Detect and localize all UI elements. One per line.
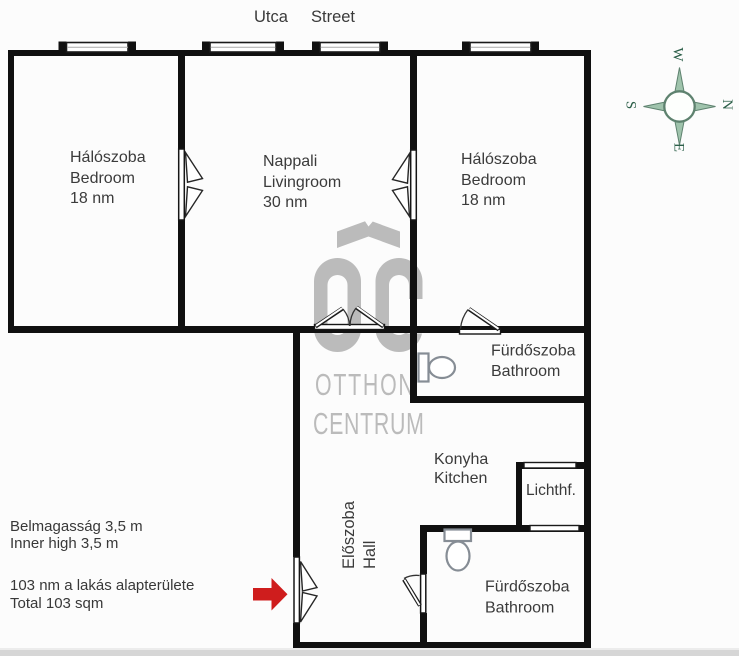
svg-text:N: N xyxy=(719,99,735,110)
svg-text:30 nm: 30 nm xyxy=(263,194,307,211)
svg-text:18 nm: 18 nm xyxy=(461,192,505,209)
svg-text:Hálószoba: Hálószoba xyxy=(461,151,537,168)
svg-text:S: S xyxy=(623,101,639,109)
svg-text:Livingroom: Livingroom xyxy=(263,174,341,191)
svg-text:Fürdőszoba: Fürdőszoba xyxy=(491,343,576,360)
svg-text:Kitchen: Kitchen xyxy=(434,470,487,487)
svg-text:Hall: Hall xyxy=(361,541,379,569)
svg-text:Bedroom: Bedroom xyxy=(461,172,526,189)
svg-text:Előszoba: Előszoba xyxy=(340,500,358,569)
svg-text:Lichthf.: Lichthf. xyxy=(526,482,576,499)
svg-text:103 nm a lakás alapterülete: 103 nm a lakás alapterülete xyxy=(10,577,194,594)
svg-text:18 nm: 18 nm xyxy=(70,190,114,207)
svg-text:OTTHON: OTTHON xyxy=(315,367,416,402)
svg-text:CENTRUM: CENTRUM xyxy=(313,406,425,441)
svg-text:Total 103 sqm: Total 103 sqm xyxy=(10,595,103,612)
svg-text:Nappali: Nappali xyxy=(263,153,317,170)
svg-text:Fürdőszoba: Fürdőszoba xyxy=(485,579,570,596)
svg-text:Bathroom: Bathroom xyxy=(491,363,560,380)
svg-text:E: E xyxy=(671,143,687,152)
svg-text:Hálószoba: Hálószoba xyxy=(70,149,146,166)
svg-text:Inner high 3,5 m: Inner high 3,5 m xyxy=(10,535,118,552)
svg-text:Bathroom: Bathroom xyxy=(485,600,554,617)
svg-text:Konyha: Konyha xyxy=(434,451,488,468)
svg-text:W: W xyxy=(670,47,686,62)
svg-text:Bedroom: Bedroom xyxy=(70,170,135,187)
svg-text:Belmagasság 3,5 m: Belmagasság 3,5 m xyxy=(10,518,143,535)
svg-text:Utca: Utca xyxy=(254,8,289,26)
svg-text:Street: Street xyxy=(311,8,355,26)
